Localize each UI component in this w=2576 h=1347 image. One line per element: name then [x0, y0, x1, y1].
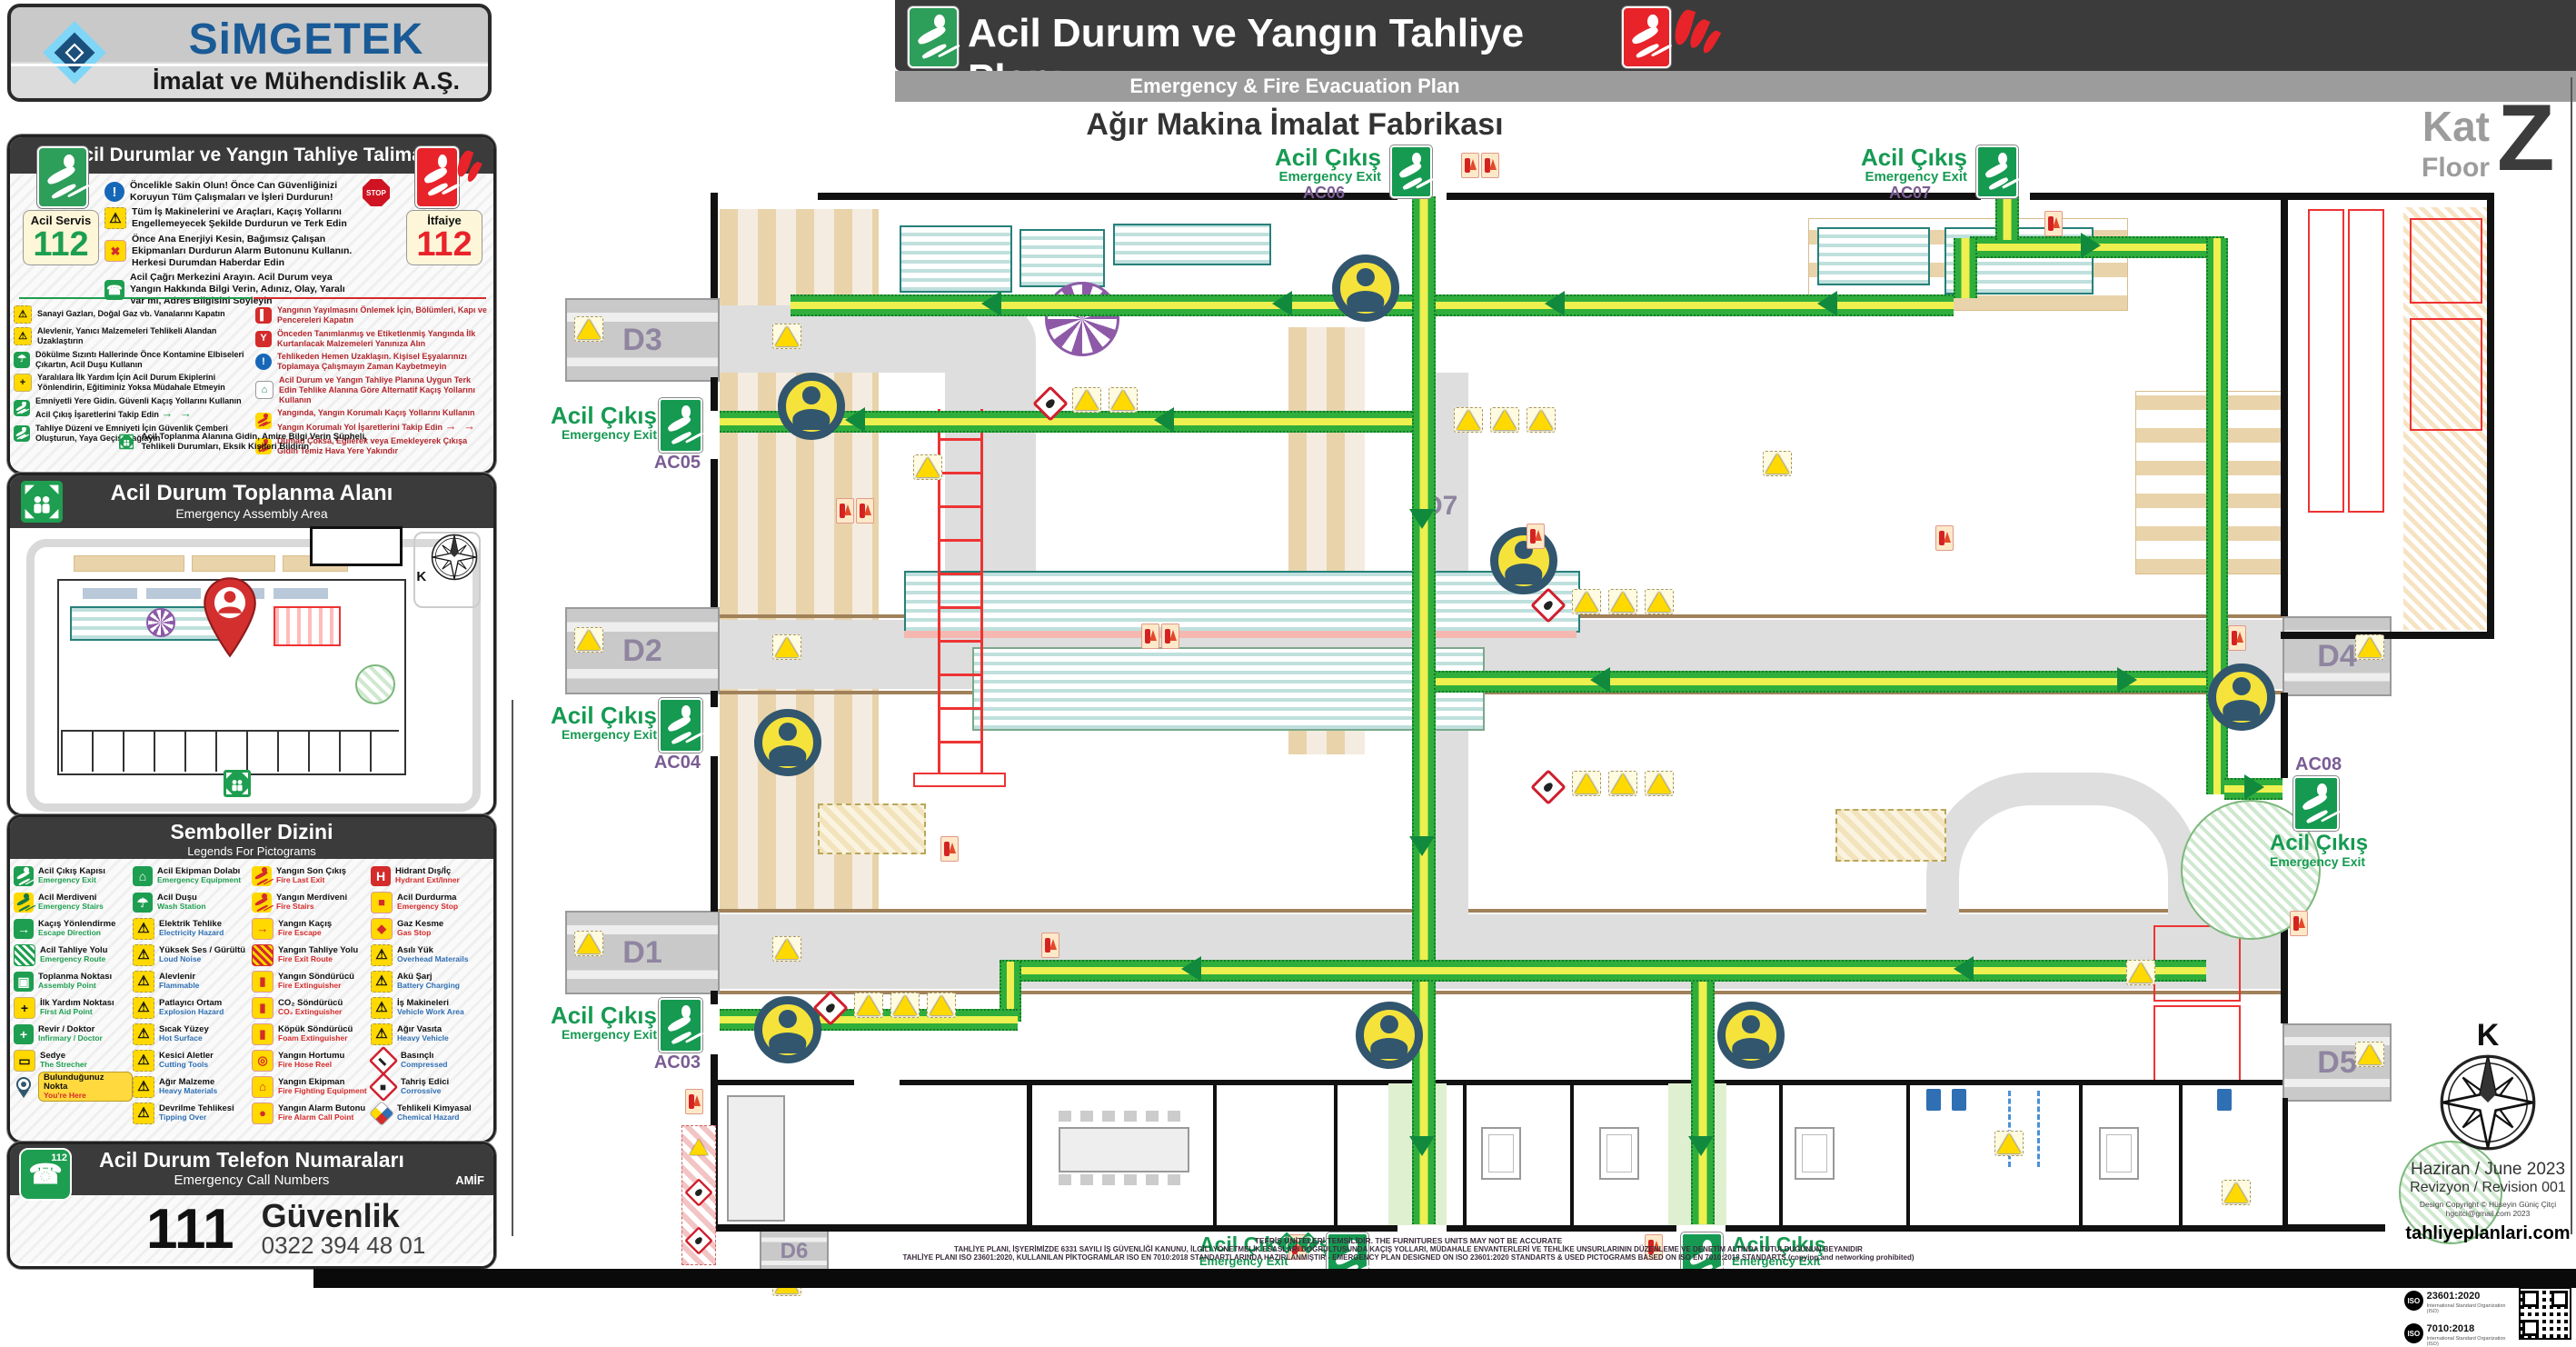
toilet-sign	[2217, 1089, 2232, 1111]
room-divider	[1213, 1083, 1217, 1225]
evacuation-plan-sheet: SiMGETEK İmalat ve Mühendislik A.Ş. Acil…	[0, 0, 2576, 1288]
long-machine	[904, 571, 1580, 633]
bottom-bar	[313, 1269, 2576, 1288]
fire-extinguisher-icon	[940, 836, 959, 862]
exit-id: AC06	[1303, 184, 1345, 203]
fire-hose-icon	[1141, 624, 1159, 649]
wall	[2281, 193, 2288, 616]
toilet-sign	[1952, 1089, 1966, 1111]
route	[791, 294, 1412, 316]
gate-label: D2	[622, 634, 661, 669]
wall	[2281, 632, 2494, 639]
fire-extinguisher-icon	[685, 1089, 703, 1114]
room-divider	[2079, 1083, 2083, 1225]
desk	[2099, 1127, 2139, 1180]
exit-label-en: Emergency Exit	[562, 727, 657, 742]
person-marker	[1356, 1002, 1423, 1069]
route-arrow-left	[1272, 291, 1292, 316]
wall	[711, 459, 718, 607]
gate-label: D4	[2317, 639, 2356, 674]
exit-AC06: Acil Çıkış Emergency Exit AC06	[1208, 144, 1445, 198]
truck-warning-icon	[2355, 1042, 2384, 1067]
route	[1432, 294, 1954, 316]
route-arrow-left	[845, 407, 865, 433]
fire-extinguisher-icon	[856, 498, 874, 524]
iso-standard-1: 23601:2020	[2427, 1291, 2481, 1302]
route	[1995, 196, 2019, 240]
ghs-diamond	[684, 1178, 713, 1207]
gate-label: D5	[2317, 1045, 2356, 1081]
machine	[1019, 229, 1105, 287]
crane-rail-pair	[938, 409, 983, 774]
truck-warning-icon	[574, 627, 603, 653]
disclaimer-line-2: TAHLİYE PLANI, İŞYERİMİZDE 6331 SAYILI İ…	[727, 1245, 2090, 1253]
warning-triangle	[1608, 771, 1637, 796]
exit-label-tr: Acil Çıkış	[551, 402, 657, 430]
fire-extinguisher-icon	[2228, 625, 2246, 651]
iso-sub: International Standard Organization (ISO…	[2427, 1303, 2513, 1314]
route-arrow-left	[1154, 407, 1174, 433]
disclaimers: TEFRİŞ ÜNİTELERİ TEMSİLİDİR. THE FURNITU…	[727, 1236, 2090, 1262]
route-arrow-down	[1409, 836, 1435, 856]
staging-zone	[1835, 809, 1946, 862]
wall	[711, 1224, 1397, 1232]
fire-extinguisher-icon	[1935, 525, 1954, 551]
wall	[1447, 1224, 1676, 1232]
warning-triangle	[1994, 1131, 2024, 1156]
fire-extinguisher-icon	[836, 498, 854, 524]
iso-standard-2: 7010:2018	[2427, 1323, 2475, 1334]
warning-triangle	[1572, 589, 1601, 614]
route-arrow-left	[1590, 667, 1610, 693]
warning-triangle	[1490, 407, 1519, 433]
wall	[711, 193, 718, 298]
route-arrow-down	[1409, 1136, 1435, 1156]
person-marker	[754, 996, 821, 1063]
footer-revision: Revizyon / Revision 001	[2399, 1180, 2576, 1196]
room-divider	[1906, 1083, 1910, 1225]
person-marker	[1717, 1002, 1785, 1069]
route-spine	[1691, 969, 1715, 1224]
desk	[1599, 1127, 1639, 1180]
disclaimer-line-3: TAHLİYE PLANI ISO 23601:2020, KULLANILAN…	[727, 1253, 2090, 1262]
gate-label: D1	[622, 935, 661, 971]
exit-AC07: Acil Çıkış Emergency Exit AC07	[1795, 144, 2031, 198]
machine-red-line	[904, 631, 1576, 638]
footer-block: K Haziran / June 2023 Revizyon / Revisio…	[2399, 1018, 2576, 1244]
chairs	[1059, 1174, 1186, 1185]
person-marker	[1332, 254, 1399, 322]
warning-triangle	[1645, 771, 1674, 796]
margin-line-left	[512, 700, 513, 1236]
explosive-zone-band	[681, 1125, 716, 1265]
iso-rows: ISO 23601:2020 International Standard Or…	[2404, 1287, 2513, 1347]
room-divider	[1570, 1083, 1574, 1225]
staging-zone	[818, 803, 926, 854]
disclaimer-line-1: TEFRİŞ ÜNİTELERİ TEMSİLİDİR. THE FURNITU…	[727, 1236, 2090, 1245]
warning-triangle	[1527, 407, 1556, 433]
toilet-sign	[1926, 1089, 1941, 1111]
warning-triangle	[854, 993, 883, 1018]
exit-AC08: AC08 Acil Çıkış Emergency Exit	[2270, 754, 2415, 863]
warning-triangle	[927, 993, 956, 1018]
desk	[1795, 1127, 1835, 1180]
truck-warning-icon	[574, 316, 603, 342]
machine	[1817, 227, 1930, 285]
route-arrow-down	[1688, 1136, 1714, 1156]
person-marker	[1490, 527, 1557, 594]
room-divider	[1779, 1083, 1783, 1225]
kitchen-wall	[718, 1080, 854, 1085]
crane-rail	[2308, 209, 2344, 513]
fire-extinguisher-icon	[1041, 933, 1059, 958]
exit-AC03: Acil Çıkış Emergency Exit AC03	[518, 998, 713, 1080]
exit-sign-icon	[659, 398, 702, 453]
exit-label-tr: Acil Çıkış	[1861, 144, 1967, 172]
fire-extinguisher-icon	[1161, 624, 1179, 649]
person-marker	[778, 373, 845, 440]
warning-triangle	[913, 454, 942, 480]
exit-sign-icon	[2293, 776, 2339, 831]
urinal-row	[2037, 1091, 2040, 1167]
footer-email: hgcitci@gmail.com 2023	[2399, 1209, 2576, 1218]
exit-AC05: Acil Çıkış Emergency Exit AC05	[518, 398, 713, 480]
exit-id: AC08	[2295, 754, 2342, 775]
explosion-hazard-icon	[690, 1140, 709, 1156]
warning-triangle	[890, 993, 920, 1018]
fire-extinguisher-icon	[1527, 524, 1545, 549]
footer-copyright: Design Copyright © Hüseyin Güniç Çitçi	[2399, 1200, 2576, 1209]
fire-extinguisher-icon	[1481, 153, 1499, 178]
iso-badge-icon: ISO	[2404, 1323, 2423, 1343]
exit-sign-icon	[1976, 145, 2018, 198]
hatch-block	[972, 647, 1485, 731]
route-arrow-left	[1545, 291, 1565, 316]
footer-website: tahliyeplanlari.com	[2399, 1223, 2576, 1244]
fire-extinguisher-icon	[2044, 211, 2063, 236]
crane-rail	[2348, 209, 2384, 513]
annex-rack	[2410, 218, 2482, 304]
qr-code	[2519, 1287, 2571, 1340]
room-divider	[1334, 1083, 1338, 1225]
ghs-flame-diamond	[684, 1226, 713, 1255]
person-marker	[2208, 664, 2275, 731]
route	[1432, 671, 2206, 693]
gate-label: D3	[622, 323, 661, 358]
fire-extinguisher-icon	[1461, 153, 1479, 178]
route-spine	[1412, 196, 1436, 1224]
exit-id: AC04	[654, 753, 701, 773]
warning-triangle	[1763, 451, 1792, 476]
route	[1954, 238, 1977, 298]
truck-warning-icon	[772, 634, 801, 660]
machine	[900, 225, 1012, 293]
conference-table	[1059, 1127, 1189, 1172]
warning-triangle	[1109, 387, 1138, 413]
red-rack	[2153, 1005, 2241, 1082]
warning-triangle	[1572, 771, 1601, 796]
exit-label-tr: Acil Çıkış	[1275, 144, 1381, 172]
exit-id: AC07	[1889, 184, 1931, 203]
annex-rack	[2410, 318, 2482, 431]
route	[2206, 238, 2228, 674]
truck-warning-icon	[2355, 634, 2384, 660]
corridor-u-turn	[1926, 773, 2201, 951]
iso-sub: International Standard Organization (ISO…	[2427, 1336, 2513, 1347]
exit-sign-icon	[659, 698, 702, 753]
wall	[2487, 193, 2494, 632]
room-divider	[2179, 1083, 2183, 1225]
route-arrow-left	[981, 291, 1001, 316]
exit-sign-icon	[1390, 145, 1432, 198]
compass-north-label: K	[2399, 1018, 2576, 1053]
exit-label-en: Emergency Exit	[1865, 169, 1967, 185]
warning-triangle	[2126, 960, 2155, 985]
exit-label-en: Emergency Exit	[1278, 169, 1381, 185]
ghs-flammable-diamond	[1530, 769, 1566, 805]
kitchen-wall	[900, 1080, 1027, 1085]
warning-triangle	[1454, 407, 1483, 433]
exit-label-tr: Acil Çıkış	[2270, 831, 2368, 856]
route-arrow-right	[2244, 774, 2264, 800]
desk	[1481, 1127, 1521, 1180]
wall	[2030, 193, 2494, 200]
iso-badge-icon: ISO	[2404, 1291, 2423, 1311]
fire-extinguisher-icon	[2290, 911, 2308, 936]
rotary-machine	[1045, 282, 1119, 356]
office-wall-left	[1027, 1080, 1032, 1229]
exit-AC04: Acil Çıkış Emergency Exit AC04	[518, 698, 713, 780]
exit-label-tr: Acil Çıkış	[551, 702, 657, 730]
crane-rail-foot	[913, 773, 1006, 787]
kitchen-counter	[727, 1095, 785, 1222]
route-arrow-right	[2117, 667, 2137, 693]
warning-triangle	[2222, 1180, 2251, 1205]
route-arrow-right	[2081, 233, 2101, 258]
exit-label-tr: Acil Çıkış	[551, 1002, 657, 1030]
footer-date: Haziran / June 2023	[2399, 1160, 2576, 1180]
compass-rose-icon	[2439, 1053, 2537, 1152]
exit-id: AC05	[654, 453, 701, 474]
exit-label-en: Emergency Exit	[562, 1027, 657, 1042]
iso-row: ISO 7010:2018 International Standard Org…	[2404, 1320, 2513, 1347]
route-arrow-down	[1409, 509, 1435, 529]
warning-triangle	[1645, 589, 1674, 614]
route-arrow-left	[1817, 291, 1837, 316]
room-divider	[1463, 1083, 1467, 1225]
warning-triangle	[1608, 589, 1637, 614]
route-arrow-left	[1181, 956, 1201, 982]
person-marker	[754, 709, 821, 776]
floor-plan: D3 D2 D1 D4 D5 D6 D7	[0, 0, 2576, 1288]
warning-triangle	[1072, 387, 1101, 413]
exit-label-en: Emergency Exit	[562, 427, 657, 442]
truck-warning-icon	[772, 936, 801, 962]
exit-sign-icon	[659, 998, 702, 1053]
route-arrow-left	[1954, 956, 1974, 982]
truck-warning-icon	[574, 931, 603, 956]
exit-label-en: Emergency Exit	[2270, 854, 2365, 869]
truck-warning-icon	[772, 324, 801, 349]
iso-row: ISO 23601:2020 International Standard Or…	[2404, 1287, 2513, 1314]
machine	[1113, 224, 1271, 265]
chairs	[1059, 1111, 1186, 1122]
exit-id: AC03	[654, 1053, 701, 1073]
